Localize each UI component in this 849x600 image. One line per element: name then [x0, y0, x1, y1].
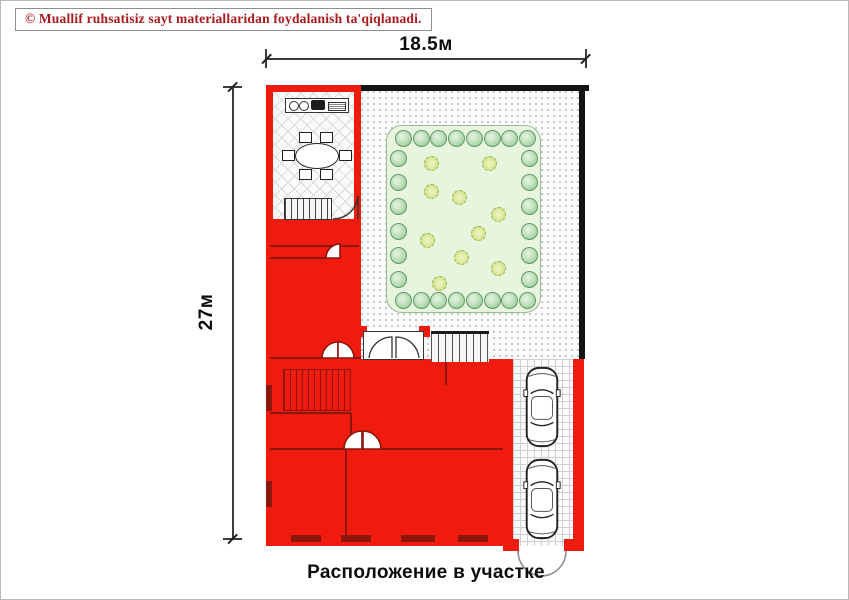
entrance-double-door-icon: [364, 332, 424, 360]
garden-lawn: [386, 125, 541, 313]
border-tree-icon: [448, 292, 465, 309]
internal-staircase-icon: [283, 369, 351, 411]
border-tree-icon: [501, 130, 518, 147]
dimension-height-label: 27м: [196, 282, 218, 342]
border-tree-icon: [521, 271, 538, 288]
garden-shrub-icon: [432, 276, 447, 291]
plot-boundary-right: [579, 85, 585, 359]
border-tree-icon: [519, 130, 536, 147]
border-tree-icon: [519, 292, 536, 309]
border-tree-icon: [484, 130, 501, 147]
garden-shrub-icon: [420, 233, 435, 248]
border-tree-icon: [521, 150, 538, 167]
border-tree-icon: [484, 292, 501, 309]
dimension-width-label: 18.5м: [266, 34, 586, 56]
border-tree-icon: [390, 223, 407, 240]
plan-caption: Расположение в участке: [271, 562, 581, 584]
garden-shrub-icon: [471, 226, 486, 241]
garden-shrub-icon: [491, 207, 506, 222]
car-top-view-icon: [522, 457, 562, 546]
border-tree-icon: [390, 247, 407, 264]
entrance-porch: [363, 331, 424, 360]
border-tree-icon: [448, 130, 465, 147]
border-tree-icon: [430, 130, 447, 147]
car-top-view-icon: [522, 365, 562, 454]
garden-shrub-icon: [452, 190, 467, 205]
dimension-height-line: [232, 86, 234, 539]
border-tree-icon: [390, 174, 407, 191]
border-tree-icon: [390, 198, 407, 215]
dimension-width-line: [266, 58, 586, 60]
border-tree-icon: [521, 174, 538, 191]
border-tree-icon: [466, 292, 483, 309]
border-tree-icon: [521, 198, 538, 215]
border-tree-icon: [466, 130, 483, 147]
entrance-steps-icon: [431, 331, 489, 362]
garden-shrub-icon: [424, 156, 439, 171]
border-tree-icon: [413, 130, 430, 147]
border-tree-icon: [390, 150, 407, 167]
border-tree-icon: [413, 292, 430, 309]
copyright-notice: © Muallif ruhsatisiz sayt materiallarida…: [15, 8, 432, 31]
garden-shrub-icon: [482, 156, 497, 171]
border-tree-icon: [501, 292, 518, 309]
site-plan-page: © Muallif ruhsatisiz sayt materiallarida…: [0, 0, 849, 600]
garden-shrub-icon: [424, 184, 439, 199]
garden-shrub-icon: [491, 261, 506, 276]
border-tree-icon: [521, 247, 538, 264]
border-tree-icon: [430, 292, 447, 309]
border-tree-icon: [521, 223, 538, 240]
border-tree-icon: [390, 271, 407, 288]
parking-area: [522, 365, 564, 546]
garden-shrub-icon: [454, 250, 469, 265]
border-tree-icon: [395, 292, 412, 309]
driveway-wall-left: [503, 359, 513, 546]
border-tree-icon: [395, 130, 412, 147]
driveway-wall-right: [573, 359, 584, 541]
